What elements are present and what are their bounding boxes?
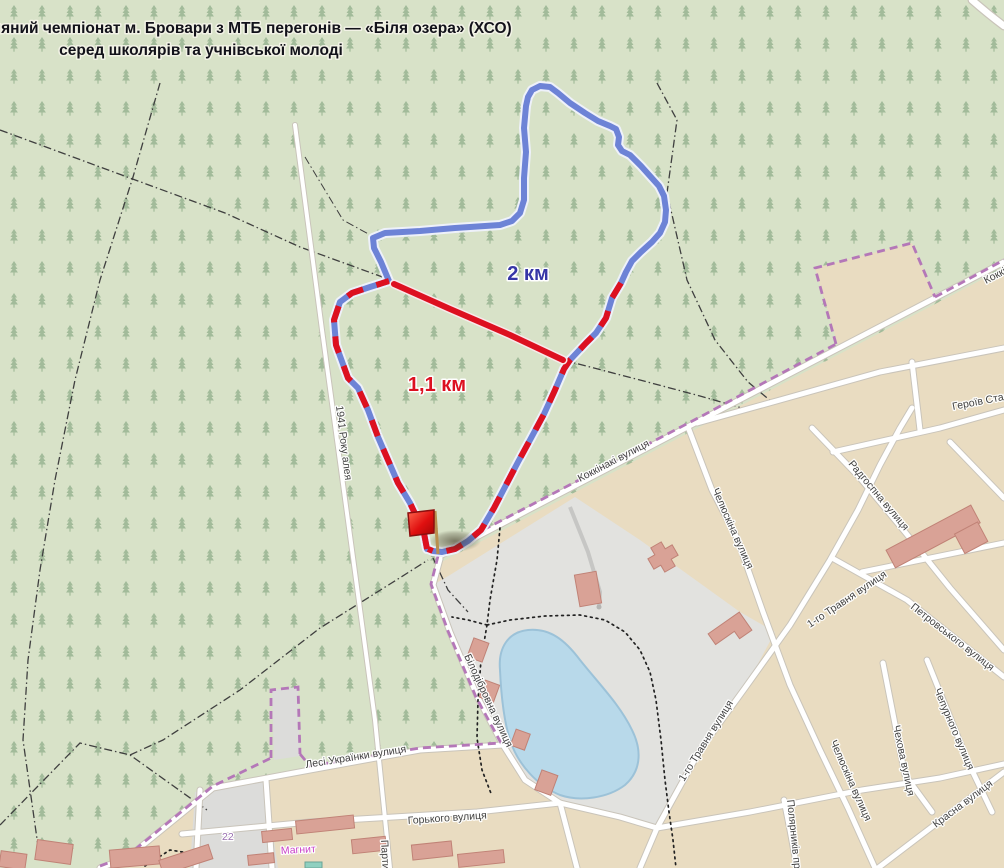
race-course-map: Коккінакі вулиця Коккінакі вулиця 1941 Р… bbox=[0, 0, 1004, 868]
map-canvas: Коккінакі вулиця Коккінакі вулиця 1941 Р… bbox=[0, 0, 1004, 868]
poi-label-mahnit: Магнит bbox=[281, 843, 317, 857]
event-title-line1: Відкритий весняний чемпіонат м. Бровари … bbox=[0, 20, 512, 37]
event-title-line2: серед школярів та учнівської молоді bbox=[59, 42, 343, 59]
housenumber-22: 22 bbox=[222, 831, 234, 843]
red-flag-icon bbox=[408, 510, 434, 536]
course-label-2km: 2 км bbox=[507, 263, 548, 285]
pool-building bbox=[305, 862, 322, 868]
course-label-1-1km: 1,1 км bbox=[408, 374, 466, 396]
cemetery-notch bbox=[272, 687, 300, 760]
